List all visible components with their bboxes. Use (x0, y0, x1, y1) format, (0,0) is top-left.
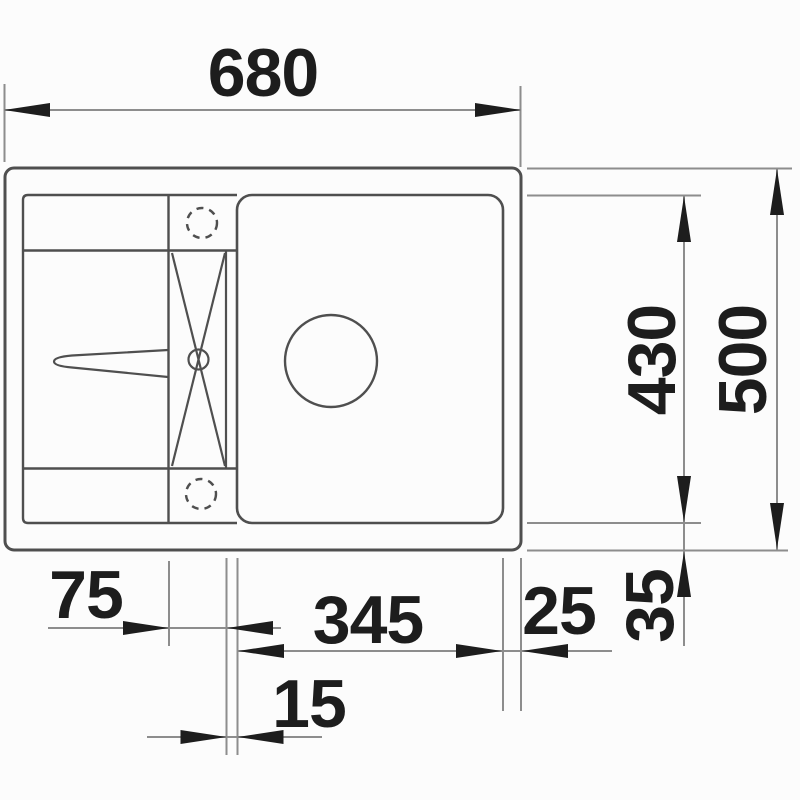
arrowhead-75-right (227, 621, 273, 635)
sink-body (5, 168, 521, 550)
dim-label-bowl-depth: 430 (614, 305, 690, 415)
arrowhead-75-left (123, 621, 169, 635)
dim-label-total-width: 680 (208, 35, 318, 111)
drainboard-groove (54, 350, 168, 377)
dim-label-total-depth: 500 (705, 305, 781, 415)
dimension-labels: 680 75 345 25 15 430 500 35 (49, 35, 781, 742)
dim-label-gap-segment: 15 (272, 666, 346, 742)
arrowhead-680-left (4, 103, 50, 117)
arrowhead-430-top (677, 196, 691, 242)
arrowhead-15-left (181, 730, 227, 744)
arrowhead-500-bottom (770, 503, 784, 549)
tap-hole-bottom (186, 479, 216, 509)
arrowhead-345-left (238, 644, 284, 658)
bowl-drain-hole (285, 315, 377, 407)
dim-label-bowl-width: 345 (313, 582, 423, 658)
dim-label-drainer-segment: 75 (49, 557, 123, 633)
sink-dimension-drawing: 680 75 345 25 15 430 500 35 (0, 0, 800, 800)
sink-outer-outline (5, 168, 521, 550)
drawing-canvas: 680 75 345 25 15 430 500 35 (0, 0, 800, 800)
tap-hole-top (187, 208, 217, 238)
dim-label-right-inset: 25 (522, 573, 596, 649)
arrowhead-345-right (456, 644, 502, 658)
arrowhead-430-bottom (677, 476, 691, 522)
arrowhead-680-right (475, 103, 521, 117)
dim-label-bottom-inset: 35 (612, 569, 688, 643)
bowl-outline (237, 195, 503, 523)
arrowhead-500-top (770, 169, 784, 215)
